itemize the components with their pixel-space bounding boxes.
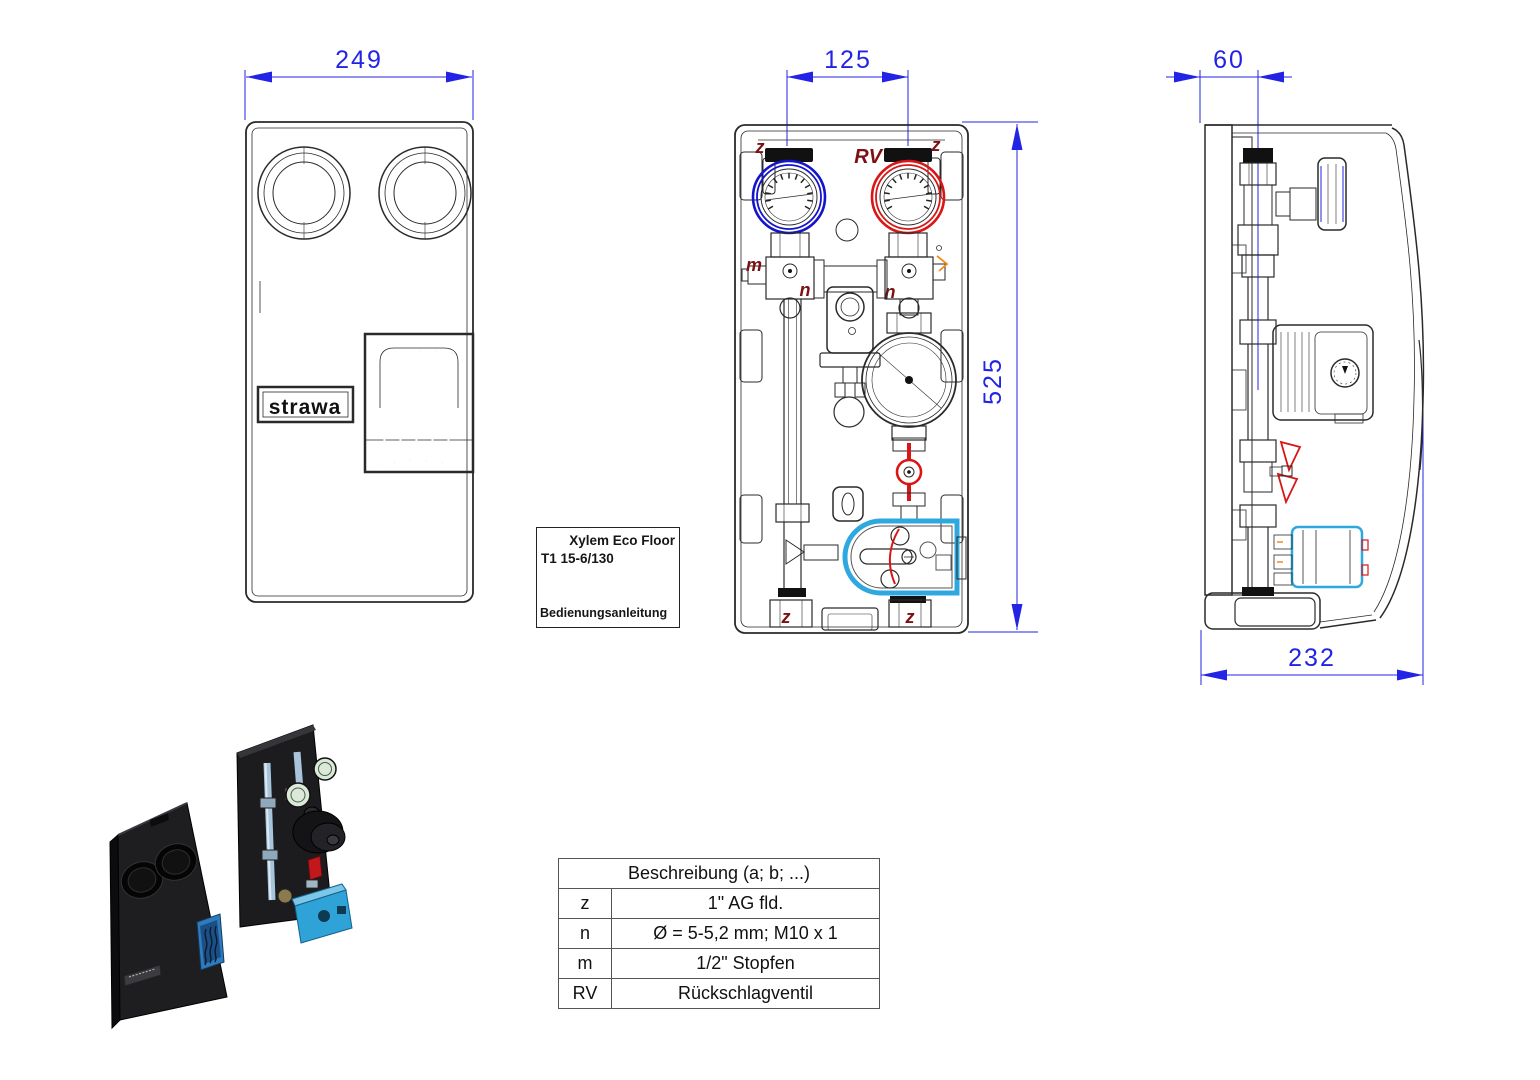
- manual-title: Bedienungsanleitung: [540, 606, 667, 620]
- front-cover-view: 249: [230, 40, 490, 655]
- port-label-n-right: n: [885, 282, 896, 302]
- render-pump-unit: [237, 725, 352, 943]
- red-ball-valve: [893, 438, 925, 519]
- render-gauge-1: [286, 783, 310, 807]
- legend-row-n: n Ø = 5-5,2 mm; M10 x 1: [559, 919, 880, 949]
- dim-width-249-label: 249: [335, 46, 383, 74]
- side-mixing-valve: [1274, 527, 1368, 587]
- pump: [862, 299, 956, 440]
- thermal-actuator: [820, 287, 880, 427]
- technical-drawing-canvas: 249: [0, 0, 1540, 1080]
- mixing-valve: [845, 521, 966, 603]
- o-ring-band-left: [778, 588, 806, 597]
- side-pump: [1240, 325, 1373, 492]
- blue-thermometer-gauge: [753, 161, 825, 233]
- union-nut-right: [889, 233, 927, 257]
- dim-width-125-label: 125: [824, 46, 872, 74]
- manual-label-plate: Xylem Eco Floor T1 15-6/130 Bedienungsan…: [536, 527, 680, 628]
- red-thermometer-gauge: [872, 161, 944, 233]
- product-model: T1 15-6/130: [541, 551, 614, 566]
- legend-key-z: z: [559, 889, 612, 919]
- legend-desc-z: 1" AG fld.: [612, 889, 880, 919]
- legend-key-m: m: [559, 949, 612, 979]
- legend-row-z: z 1" AG fld.: [559, 889, 880, 919]
- legend-header: Beschreibung (a; b; ...): [559, 859, 880, 889]
- pump-speed-dial: [1331, 359, 1359, 387]
- port-label-z-top-left: z: [755, 137, 765, 157]
- render-pump: [293, 811, 345, 853]
- union-nut-left: [771, 233, 809, 257]
- port-label-z-bottom-left: z: [781, 607, 791, 627]
- render-cover: [110, 803, 227, 1028]
- port-label-n-left: n: [800, 280, 811, 300]
- dimension-525: 525: [962, 122, 1038, 632]
- dim-depth-232-label: 232: [1288, 644, 1336, 672]
- back-plate: [1232, 137, 1252, 595]
- legend-key-n: n: [559, 919, 612, 949]
- side-thermometer-dial: [1318, 158, 1346, 230]
- front-open-view: 125 525 z RV: [700, 40, 1045, 665]
- vent-circle: [836, 219, 858, 241]
- side-view: 60 232: [1140, 40, 1540, 700]
- legend-desc-rv: Rückschlagventil: [612, 979, 880, 1009]
- dim-offset-60-label: 60: [1213, 46, 1245, 74]
- isometric-render: [80, 710, 410, 1060]
- legend-row-rv: RV Rückschlagventil: [559, 979, 880, 1009]
- wave-logo-panel: [365, 334, 473, 472]
- render-red-valve: [308, 856, 322, 880]
- flow-window: [833, 487, 863, 521]
- legend-key-rv: RV: [559, 979, 612, 1009]
- render-logo-panel: [197, 914, 224, 970]
- legend-desc-n: Ø = 5-5,2 mm; M10 x 1: [612, 919, 880, 949]
- render-gauge-2: [314, 758, 336, 780]
- wave-lines: [378, 350, 453, 464]
- side-red-valve-handle: [1270, 442, 1300, 502]
- wall-section-hatch: [1205, 125, 1392, 629]
- port-label-rv: RV: [854, 146, 883, 168]
- strawa-logo: strawa: [258, 387, 353, 422]
- return-pipe: [776, 299, 838, 597]
- side-cover-curve: [1320, 128, 1423, 628]
- legend-desc-m: 1/2" Stopfen: [612, 949, 880, 979]
- port-label-m: m: [746, 255, 762, 275]
- legend-table: Beschreibung (a; b; ...) z 1" AG fld. n …: [558, 858, 880, 1009]
- legend-row-m: m 1/2" Stopfen: [559, 949, 880, 979]
- legend-header-row: Beschreibung (a; b; ...): [559, 859, 880, 889]
- cover-hole-left: [258, 147, 350, 239]
- o-ring-band-side: [1242, 587, 1274, 596]
- port-label-z-bottom-right: z: [905, 607, 915, 627]
- side-valve-top: [1238, 148, 1346, 344]
- port-n-hole-left: [780, 298, 800, 318]
- dimension-249: 249: [245, 46, 473, 120]
- cover-outline: [246, 122, 473, 602]
- side-lower-assembly: [1235, 505, 1368, 626]
- product-name: Xylem Eco Floor: [565, 533, 675, 548]
- dim-height-525-label: 525: [979, 357, 1007, 405]
- cover-hole-right: [379, 147, 471, 239]
- port-label-z-top-right: z: [931, 135, 941, 155]
- strawa-logo-text: strawa: [269, 396, 342, 419]
